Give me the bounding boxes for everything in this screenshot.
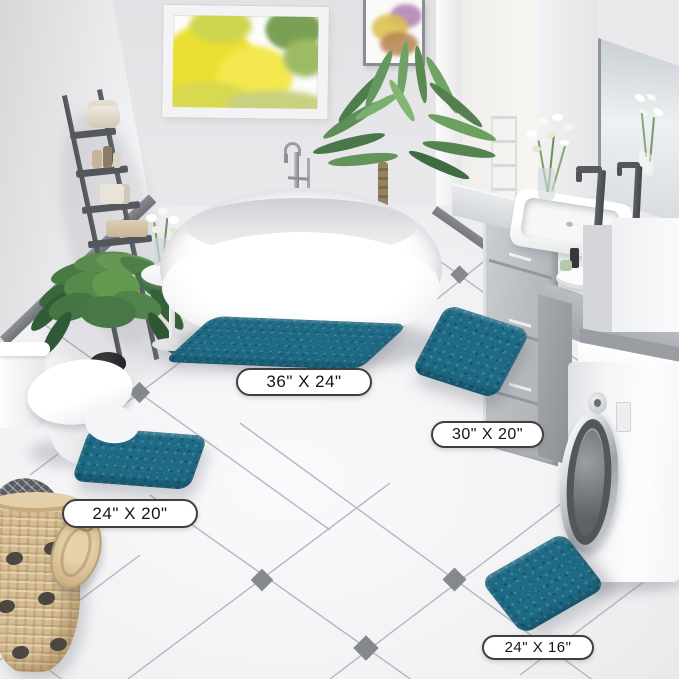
size-label-24x16: 24" X 16" — [482, 635, 594, 660]
basket-dot — [11, 645, 30, 661]
cabinet-gap — [583, 225, 612, 332]
shelf-jars — [100, 184, 130, 204]
drawer-handle — [509, 252, 531, 261]
basket-dot — [0, 599, 16, 615]
size-label-30x20: 30" X 20" — [431, 421, 544, 448]
drawer-handle — [509, 382, 531, 391]
basket-dot — [37, 591, 56, 607]
rolled-towels — [86, 106, 120, 128]
washer-dispenser — [616, 402, 631, 432]
bathroom-scene: 36" X 24" 30" X 20" 24" X 20" 24" X 16" — [0, 0, 679, 679]
upper-cabinet — [612, 218, 679, 332]
green-jar — [560, 260, 572, 271]
size-label-24x20: 24" X 20" — [62, 499, 198, 528]
basket-dot — [49, 637, 68, 653]
shelf-bottles — [92, 146, 122, 168]
basket-dot — [5, 551, 24, 567]
flower-vase — [538, 168, 555, 200]
washer-knob — [588, 392, 607, 414]
counter-flowers — [520, 112, 582, 204]
size-label-36x24: 36" X 24" — [236, 368, 372, 396]
rug-contour-24x20 — [71, 427, 208, 490]
